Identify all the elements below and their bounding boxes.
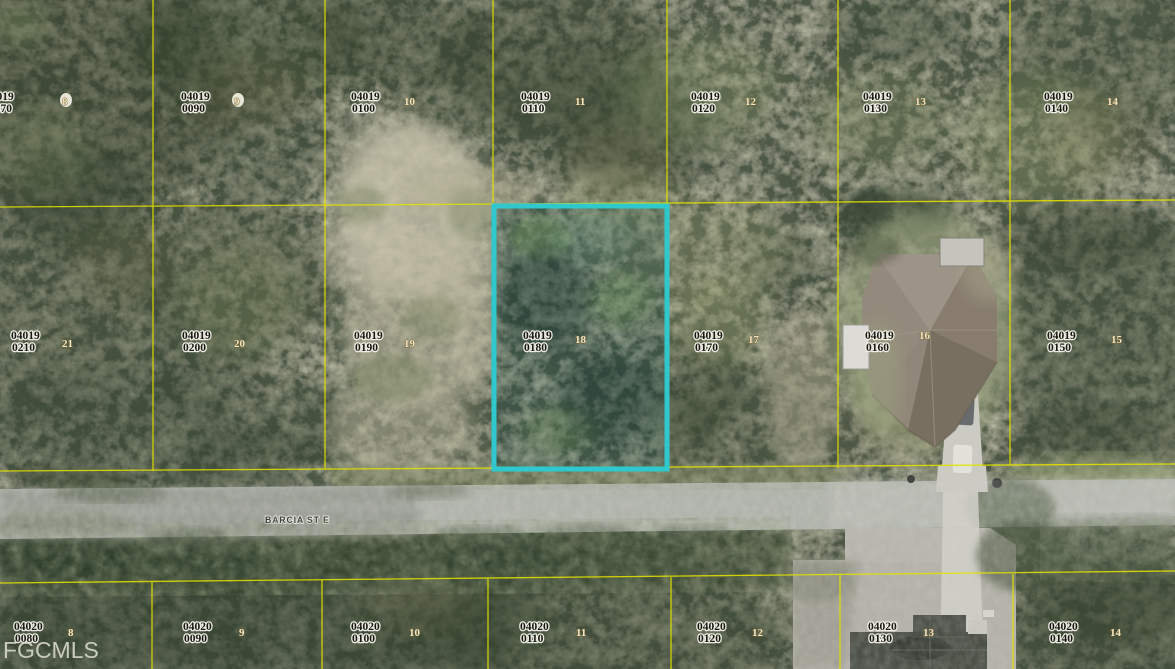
svg-text:04020: 04020 [520, 621, 549, 633]
svg-text:11: 11 [575, 96, 585, 108]
svg-text:04020: 04020 [868, 621, 897, 633]
svg-text:0070: 0070 [0, 103, 12, 115]
svg-text:0100: 0100 [352, 633, 375, 645]
svg-text:0130: 0130 [869, 633, 892, 645]
svg-text:04019: 04019 [1047, 330, 1076, 342]
svg-text:04019: 04019 [0, 91, 14, 103]
svg-text:04019: 04019 [691, 91, 720, 103]
svg-text:0090: 0090 [182, 103, 205, 115]
svg-text:0130: 0130 [864, 103, 887, 115]
svg-text:0210: 0210 [12, 342, 35, 354]
svg-text:13: 13 [923, 627, 935, 639]
svg-text:0160: 0160 [866, 342, 889, 354]
svg-text:04019: 04019 [181, 91, 210, 103]
svg-text:04020: 04020 [183, 621, 212, 633]
svg-text:04019: 04019 [351, 91, 380, 103]
svg-text:0170: 0170 [695, 342, 718, 354]
svg-text:0180: 0180 [524, 342, 547, 354]
svg-text:0110: 0110 [522, 103, 545, 115]
svg-text:14: 14 [1107, 96, 1119, 108]
svg-text:12: 12 [745, 96, 757, 108]
svg-text:21: 21 [62, 338, 73, 350]
svg-text:04020: 04020 [697, 621, 726, 633]
svg-text:04019: 04019 [1044, 91, 1073, 103]
svg-text:0140: 0140 [1050, 633, 1073, 645]
svg-text:17: 17 [748, 334, 760, 346]
svg-text:04019: 04019 [694, 330, 723, 342]
svg-text:0140: 0140 [1045, 103, 1068, 115]
svg-text:0110: 0110 [521, 633, 544, 645]
svg-text:0120: 0120 [692, 103, 715, 115]
svg-text:10: 10 [409, 627, 421, 639]
svg-text:8: 8 [62, 96, 68, 108]
svg-text:04019: 04019 [863, 91, 892, 103]
svg-text:19: 19 [404, 338, 416, 350]
svg-text:18: 18 [575, 334, 587, 346]
svg-text:FGCMLS: FGCMLS [3, 637, 99, 663]
svg-text:0090: 0090 [184, 633, 207, 645]
svg-text:04019: 04019 [865, 330, 894, 342]
svg-text:0190: 0190 [355, 342, 378, 354]
svg-text:04020: 04020 [14, 621, 43, 633]
svg-text:0120: 0120 [698, 633, 721, 645]
svg-text:04020: 04020 [1049, 621, 1078, 633]
svg-text:9: 9 [234, 96, 240, 108]
svg-text:16: 16 [919, 330, 931, 342]
svg-text:04019: 04019 [523, 330, 552, 342]
svg-text:15: 15 [1111, 334, 1123, 346]
svg-text:0200: 0200 [183, 342, 206, 354]
svg-text:9: 9 [239, 627, 245, 639]
svg-text:04019: 04019 [354, 330, 383, 342]
svg-text:04020: 04020 [351, 621, 380, 633]
svg-text:04019: 04019 [521, 91, 550, 103]
svg-text:04019: 04019 [11, 330, 40, 342]
svg-text:0100: 0100 [352, 103, 375, 115]
svg-text:13: 13 [915, 96, 927, 108]
svg-text:0150: 0150 [1048, 342, 1071, 354]
svg-text:14: 14 [1110, 627, 1122, 639]
svg-text:12: 12 [752, 627, 764, 639]
svg-text:10: 10 [404, 96, 416, 108]
svg-text:20: 20 [234, 338, 246, 350]
svg-text:04019: 04019 [182, 330, 211, 342]
svg-text:11: 11 [576, 627, 586, 639]
